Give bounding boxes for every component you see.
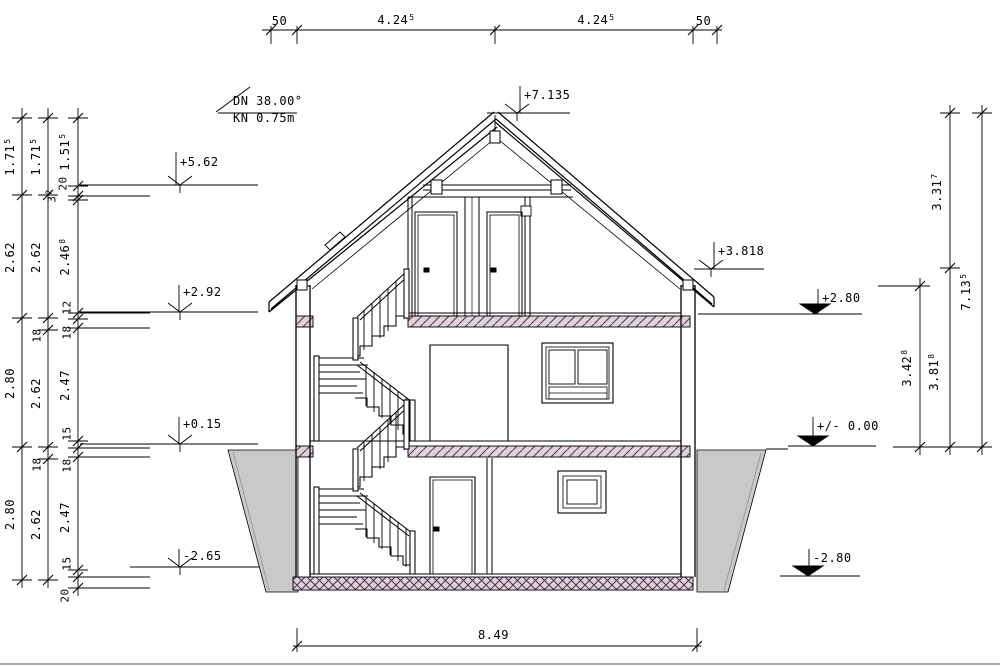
stair-upper bbox=[314, 269, 415, 441]
level-triangle-open bbox=[505, 104, 529, 121]
gf-door-opening bbox=[430, 345, 508, 441]
dim-label: 3.317 bbox=[931, 173, 943, 210]
level-triangle-filled bbox=[800, 304, 830, 314]
earth-backfill bbox=[228, 449, 788, 592]
attic-door-left bbox=[415, 212, 457, 316]
level-label-basement-raw: -2.80 bbox=[813, 552, 852, 564]
dim-label: 3.818 bbox=[928, 353, 940, 390]
roof-pitch-label: DN 38.00° bbox=[233, 95, 303, 107]
stair-lower bbox=[314, 400, 415, 574]
dim-label: 18 bbox=[32, 456, 43, 471]
door-handle bbox=[434, 527, 439, 531]
level-label-ridge: +7.135 bbox=[524, 89, 570, 101]
dim-label: 2.80 bbox=[4, 367, 16, 399]
dim-label: 12 bbox=[62, 299, 73, 314]
dim-label: 8.49 bbox=[478, 629, 510, 641]
dim-label: 50 bbox=[272, 15, 288, 27]
dim-label: 2.468 bbox=[59, 238, 71, 275]
gf-window bbox=[542, 343, 613, 403]
level-triangle-open bbox=[699, 260, 723, 277]
knee-wall-label: KN 0.75m bbox=[233, 112, 295, 124]
dim-label: 32 bbox=[47, 189, 58, 202]
dim-label: 2.62 bbox=[4, 241, 16, 273]
dim-label: 1.515 bbox=[59, 133, 71, 170]
level-triangle-open bbox=[168, 303, 192, 320]
dim-label: 1.715 bbox=[30, 138, 42, 175]
dim-label: 2.62 bbox=[30, 241, 42, 273]
level-triangle-filled bbox=[798, 436, 828, 446]
door-handle bbox=[424, 268, 429, 272]
basement bbox=[430, 471, 606, 574]
dim-label: 4.245 bbox=[377, 14, 414, 26]
level-triangle-filled bbox=[793, 566, 823, 576]
level-triangle-open bbox=[168, 176, 192, 193]
dim-label: 18 bbox=[62, 457, 73, 472]
dim-label: 15 bbox=[62, 425, 73, 440]
cross-section-drawing: 50 4.245 4.245 50 8.49 DN 38.00° KN 0.75… bbox=[0, 0, 1000, 666]
attic-door-right bbox=[487, 212, 522, 316]
dim-label: 3.428 bbox=[901, 349, 913, 386]
dim-label: 2.80 bbox=[4, 498, 16, 530]
basement-window bbox=[558, 471, 606, 513]
dim-label: 2.62 bbox=[30, 508, 42, 540]
level-label-basement-fin: -2.65 bbox=[183, 550, 222, 562]
handrail bbox=[357, 403, 409, 451]
dim-label: 7.135 bbox=[960, 273, 972, 310]
level-label-ground-zero: +/- 0.00 bbox=[817, 420, 879, 432]
level-label-eaves: +3.818 bbox=[718, 245, 764, 257]
dim-label: 18 bbox=[32, 327, 43, 342]
handrail bbox=[357, 362, 412, 405]
door-handle bbox=[491, 268, 496, 272]
drawing-canvas bbox=[0, 0, 1000, 666]
handrail bbox=[357, 493, 412, 536]
dim-label: 18 bbox=[62, 324, 73, 339]
level-label-attic-floor-raw: +2.80 bbox=[822, 292, 861, 304]
dim-label: 50 bbox=[696, 15, 712, 27]
ground-floor bbox=[430, 343, 613, 441]
purlin-right bbox=[683, 280, 693, 290]
level-label-attic-top: +5.62 bbox=[180, 156, 219, 168]
dim-label: 2.47 bbox=[59, 369, 71, 401]
dim-label: 2.62 bbox=[30, 377, 42, 409]
dim-label: 1.715 bbox=[4, 138, 16, 175]
dim-label: 2.47 bbox=[59, 501, 71, 533]
purlin-left bbox=[297, 280, 307, 290]
dim-label: 20 bbox=[60, 587, 71, 602]
level-label-ground-floor-fin: +0.15 bbox=[183, 418, 222, 430]
basement-door bbox=[430, 477, 475, 574]
level-label-attic-floor-fin: +2.92 bbox=[183, 286, 222, 298]
dim-label: 20 bbox=[58, 175, 69, 190]
attic-interior bbox=[408, 180, 573, 316]
dim-label: 4.245 bbox=[577, 14, 614, 26]
handrail bbox=[357, 272, 409, 320]
level-triangle-open bbox=[168, 435, 192, 452]
dim-label: 15 bbox=[62, 555, 73, 570]
